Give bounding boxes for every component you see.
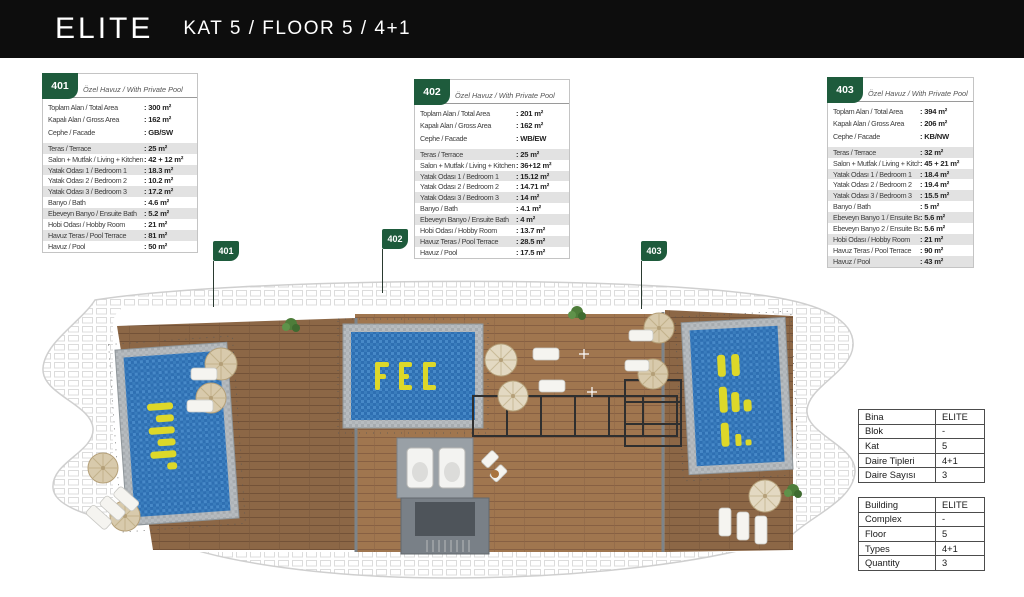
room-label: Banyo / Bath — [833, 202, 920, 211]
flag-leader-line — [641, 261, 642, 309]
room-row: Salon + Mutfak / Living + Kitchen 45 + 2… — [828, 158, 973, 169]
plan-flag-402: 402 — [382, 229, 408, 249]
info-label: Building — [859, 498, 936, 513]
info-row: Blok - — [859, 424, 985, 439]
unit-tagline: Özel Havuz / With Private Pool — [450, 80, 569, 103]
plan-flag-403: 403 — [641, 241, 667, 261]
room-row: Yatak Odası 1 / Bedroom 1 15.12 m² — [415, 171, 569, 182]
unit-rooms: Teras / Terrace 25 m² Salon + Mutfak / L… — [415, 149, 569, 258]
stair-core — [401, 498, 489, 554]
info-label: Floor — [859, 527, 936, 542]
info-value: 4+1 — [936, 541, 985, 556]
room-label: Hobi Odası / Hobby Room — [420, 226, 516, 235]
room-value: 5.6 m² — [920, 213, 968, 222]
room-value: 25 m² — [516, 150, 564, 159]
unit-card-403: 403 Özel Havuz / With Private Pool Topla… — [827, 77, 974, 268]
info-label: Types — [859, 541, 936, 556]
room-value: 14.71 m² — [516, 182, 564, 191]
room-row: Teras / Terrace 25 m² — [415, 149, 569, 160]
flag-leader-line — [382, 249, 383, 293]
room-label: Teras / Terrace — [48, 144, 144, 153]
spec-row: Kapalı Alan / Gross Area 162 m² — [415, 120, 569, 133]
floor-plan — [25, 262, 865, 594]
room-value: 45 + 21 m² — [920, 159, 968, 168]
info-value: ELITE — [936, 410, 985, 425]
room-row: Yatak Odası 2 / Bedroom 2 14.71 m² — [415, 181, 569, 192]
room-row: Ebeveyn Banyo / Ensuite Bath 5.2 m² — [43, 208, 197, 219]
room-label: Ebeveyn Banyo 2 / Ensuite Bath 2 — [833, 224, 920, 233]
spec-value: 162 m² — [516, 121, 564, 130]
unit-summary: Toplam Alan / Total Area 394 m² Kapalı A… — [828, 102, 973, 147]
unit-rooms: Teras / Terrace 32 m² Salon + Mutfak / L… — [828, 147, 973, 267]
room-value: 5 m² — [920, 202, 968, 211]
unit-summary: Toplam Alan / Total Area 201 m² Kapalı A… — [415, 104, 569, 149]
room-label: Ebeveyn Banyo 1 / Ensuite Bath 1 — [833, 213, 920, 222]
info-row: Quantity 3 — [859, 556, 985, 571]
unit-tagline: Özel Havuz / With Private Pool — [863, 78, 973, 101]
info-label: Blok — [859, 424, 936, 439]
room-label: Yatak Odası 3 / Bedroom 3 — [420, 193, 516, 202]
spec-label: Cephe / Facade — [833, 132, 920, 141]
room-label: Banyo / Bath — [48, 198, 144, 207]
room-value: 5.6 m² — [920, 224, 968, 233]
info-row: Types 4+1 — [859, 541, 985, 556]
room-label: Yatak Odası 3 / Bedroom 3 — [833, 191, 920, 200]
spec-value: 162 m² — [144, 115, 192, 124]
spec-row: Cephe / Facade KB/NW — [828, 130, 973, 143]
room-label: Yatak Odası 2 / Bedroom 2 — [420, 182, 516, 191]
room-label: Havuz / Pool — [420, 248, 516, 257]
room-value: 43 m² — [920, 257, 968, 266]
room-label: Yatak Odası 1 / Bedroom 1 — [48, 166, 144, 175]
unit-card-401-header: 401 Özel Havuz / With Private Pool — [43, 74, 197, 98]
room-value: 10.2 m² — [144, 176, 192, 185]
info-value: 3 — [936, 468, 985, 483]
room-row: Salon + Mutfak / Living + Kitchen 36+12 … — [415, 160, 569, 171]
room-label: Teras / Terrace — [833, 148, 920, 157]
room-row: Banyo / Bath 4.1 m² — [415, 203, 569, 214]
room-label: Ebeveyn Banyo / Ensuite Bath — [420, 215, 516, 224]
room-value: 90 m² — [920, 246, 968, 255]
room-value: 19.4 m² — [920, 180, 968, 189]
info-row: Bina ELITE — [859, 410, 985, 425]
info-value: 3 — [936, 556, 985, 571]
spec-label: Kapalı Alan / Gross Area — [420, 121, 516, 130]
unit-card-403-header: 403 Özel Havuz / With Private Pool — [828, 78, 973, 102]
info-value: 5 — [936, 527, 985, 542]
room-row: Yatak Odası 1 / Bedroom 1 18.4 m² — [828, 169, 973, 180]
room-value: 5.2 m² — [144, 209, 192, 218]
spec-label: Kapalı Alan / Gross Area — [833, 119, 920, 128]
room-row: Salon + Mutfak / Living + Kitchen 42 + 1… — [43, 154, 197, 165]
room-value: 21 m² — [920, 235, 968, 244]
info-row: Complex - — [859, 512, 985, 527]
room-row: Hobi Odası / Hobby Room 13.7 m² — [415, 225, 569, 236]
info-row: Building ELITE — [859, 498, 985, 513]
room-value: 15.12 m² — [516, 172, 564, 181]
unit-number-tab: 403 — [827, 77, 863, 103]
info-label: Daire Tipleri — [859, 453, 936, 468]
room-row: Banyo / Bath 5 m² — [828, 201, 973, 212]
room-value: 4.1 m² — [516, 204, 564, 213]
room-label: Hobi Odası / Hobby Room — [833, 235, 920, 244]
room-value: 18.3 m² — [144, 166, 192, 175]
room-value: 81 m² — [144, 231, 192, 240]
room-row: Ebeveyn Banyo 1 / Ensuite Bath 1 5.6 m² — [828, 212, 973, 223]
info-row: Floor 5 — [859, 527, 985, 542]
flag-leader-line — [213, 261, 214, 307]
spec-row: Toplam Alan / Total Area 300 m² — [43, 101, 197, 114]
header-bar: ELITE KAT 5 / FLOOR 5 / 4+1 — [0, 0, 1024, 58]
room-value: 36+12 m² — [516, 161, 564, 170]
info-value: ELITE — [936, 498, 985, 513]
room-row: Havuz Teras / Pool Terrace 81 m² — [43, 230, 197, 241]
spec-row: Toplam Alan / Total Area 394 m² — [828, 105, 973, 118]
room-label: Salon + Mutfak / Living + Kitchen — [48, 155, 144, 164]
spec-row: Cephe / Facade WB/EW — [415, 132, 569, 145]
room-row: Hobi Odası / Hobby Room 21 m² — [43, 219, 197, 230]
pool-403 — [675, 311, 799, 481]
room-value: 25 m² — [144, 144, 192, 153]
room-label: Teras / Terrace — [420, 150, 516, 159]
unit-card-402-header: 402 Özel Havuz / With Private Pool — [415, 80, 569, 104]
unit-rooms: Teras / Terrace 25 m² Salon + Mutfak / L… — [43, 143, 197, 252]
room-label: Salon + Mutfak / Living + Kitchen — [420, 161, 516, 170]
info-label: Kat — [859, 439, 936, 454]
room-label: Hobi Odası / Hobby Room — [48, 220, 144, 229]
unit-number-tab: 402 — [414, 79, 450, 105]
room-row: Havuz / Pool 50 m² — [43, 241, 197, 252]
room-row: Yatak Odası 1 / Bedroom 1 18.3 m² — [43, 165, 197, 176]
room-row: Yatak Odası 3 / Bedroom 3 17.2 m² — [43, 186, 197, 197]
info-label: Bina — [859, 410, 936, 425]
spec-label: Toplam Alan / Total Area — [48, 103, 144, 112]
info-value: 5 — [936, 439, 985, 454]
room-row: Havuz Teras / Pool Terrace 90 m² — [828, 245, 973, 256]
room-value: 28.5 m² — [516, 237, 564, 246]
room-label: Havuz Teras / Pool Terrace — [48, 231, 144, 240]
spec-value: 206 m² — [920, 119, 968, 128]
spec-label: Toplam Alan / Total Area — [420, 109, 516, 118]
room-row: Hobi Odası / Hobby Room 21 m² — [828, 234, 973, 245]
info-value: - — [936, 512, 985, 527]
spec-value: KB/NW — [920, 132, 968, 141]
spec-label: Cephe / Facade — [420, 134, 516, 143]
spec-row: Cephe / Facade GB/SW — [43, 126, 197, 139]
room-row: Teras / Terrace 32 m² — [828, 147, 973, 158]
room-row: Yatak Odası 2 / Bedroom 2 19.4 m² — [828, 179, 973, 190]
room-label: Havuz / Pool — [48, 242, 144, 251]
spec-value: 201 m² — [516, 109, 564, 118]
room-label: Banyo / Bath — [420, 204, 516, 213]
info-table-turkish: Bina ELITE Blok - Kat 5 Daire Tipleri 4+… — [858, 409, 985, 483]
spec-row: Toplam Alan / Total Area 201 m² — [415, 107, 569, 120]
room-row: Ebeveyn Banyo 2 / Ensuite Bath 2 5.6 m² — [828, 223, 973, 234]
room-value: 18.4 m² — [920, 170, 968, 179]
room-label: Yatak Odası 2 / Bedroom 2 — [833, 180, 920, 189]
info-row: Kat 5 — [859, 439, 985, 454]
room-row: Ebeveyn Banyo / Ensuite Bath 4 m² — [415, 214, 569, 225]
room-value: 17.2 m² — [144, 187, 192, 196]
pool-402 — [338, 319, 488, 433]
room-label: Havuz Teras / Pool Terrace — [833, 246, 920, 255]
unit-summary: Toplam Alan / Total Area 300 m² Kapalı A… — [43, 98, 197, 143]
room-value: 50 m² — [144, 242, 192, 251]
room-label: Yatak Odası 1 / Bedroom 1 — [420, 172, 516, 181]
info-label: Complex — [859, 512, 936, 527]
floor-title: KAT 5 / FLOOR 5 / 4+1 — [183, 18, 411, 40]
room-value: 13.7 m² — [516, 226, 564, 235]
spec-value: GB/SW — [144, 128, 192, 137]
room-row: Banyo / Bath 4.6 m² — [43, 197, 197, 208]
plan-flag-401: 401 — [213, 241, 239, 261]
room-row: Teras / Terrace 25 m² — [43, 143, 197, 154]
room-value: 4.6 m² — [144, 198, 192, 207]
brand-logo: ELITE — [55, 12, 153, 46]
room-row: Yatak Odası 2 / Bedroom 2 10.2 m² — [43, 175, 197, 186]
room-label: Yatak Odası 3 / Bedroom 3 — [48, 187, 144, 196]
room-value: 15.5 m² — [920, 191, 968, 200]
spec-label: Kapalı Alan / Gross Area — [48, 115, 144, 124]
room-value: 32 m² — [920, 148, 968, 157]
room-label: Havuz Teras / Pool Terrace — [420, 237, 516, 246]
info-label: Quantity — [859, 556, 936, 571]
spec-value: 394 m² — [920, 107, 968, 116]
spec-label: Toplam Alan / Total Area — [833, 107, 920, 116]
spec-value: 300 m² — [144, 103, 192, 112]
room-value: 4 m² — [516, 215, 564, 224]
spec-value: WB/EW — [516, 134, 564, 143]
unit-number-tab: 401 — [42, 73, 78, 99]
room-value: 42 + 12 m² — [144, 155, 192, 164]
room-row: Yatak Odası 3 / Bedroom 3 15.5 m² — [828, 190, 973, 201]
info-value: 4+1 — [936, 453, 985, 468]
info-label: Daire Sayısı — [859, 468, 936, 483]
room-value: 17.5 m² — [516, 248, 564, 257]
unit-tagline: Özel Havuz / With Private Pool — [78, 74, 197, 97]
spec-row: Kapalı Alan / Gross Area 162 m² — [43, 114, 197, 127]
room-label: Yatak Odası 2 / Bedroom 2 — [48, 176, 144, 185]
room-row: Yatak Odası 3 / Bedroom 3 14 m² — [415, 192, 569, 203]
room-value: 21 m² — [144, 220, 192, 229]
room-label: Salon + Mutfak / Living + Kitchen — [833, 159, 920, 168]
spec-label: Cephe / Facade — [48, 128, 144, 137]
spec-row: Kapalı Alan / Gross Area 206 m² — [828, 118, 973, 131]
room-row: Havuz Teras / Pool Terrace 28.5 m² — [415, 236, 569, 247]
room-label: Yatak Odası 1 / Bedroom 1 — [833, 170, 920, 179]
unit-card-402: 402 Özel Havuz / With Private Pool Topla… — [414, 79, 570, 259]
room-row: Havuz / Pool 17.5 m² — [415, 247, 569, 258]
info-table-english: Building ELITE Complex - Floor 5 Types 4… — [858, 497, 985, 571]
room-label: Ebeveyn Banyo / Ensuite Bath — [48, 209, 144, 218]
info-value: - — [936, 424, 985, 439]
unit-card-401: 401 Özel Havuz / With Private Pool Topla… — [42, 73, 198, 253]
info-row: Daire Sayısı 3 — [859, 468, 985, 483]
info-row: Daire Tipleri 4+1 — [859, 453, 985, 468]
bathroom-block — [397, 438, 473, 498]
room-value: 14 m² — [516, 193, 564, 202]
